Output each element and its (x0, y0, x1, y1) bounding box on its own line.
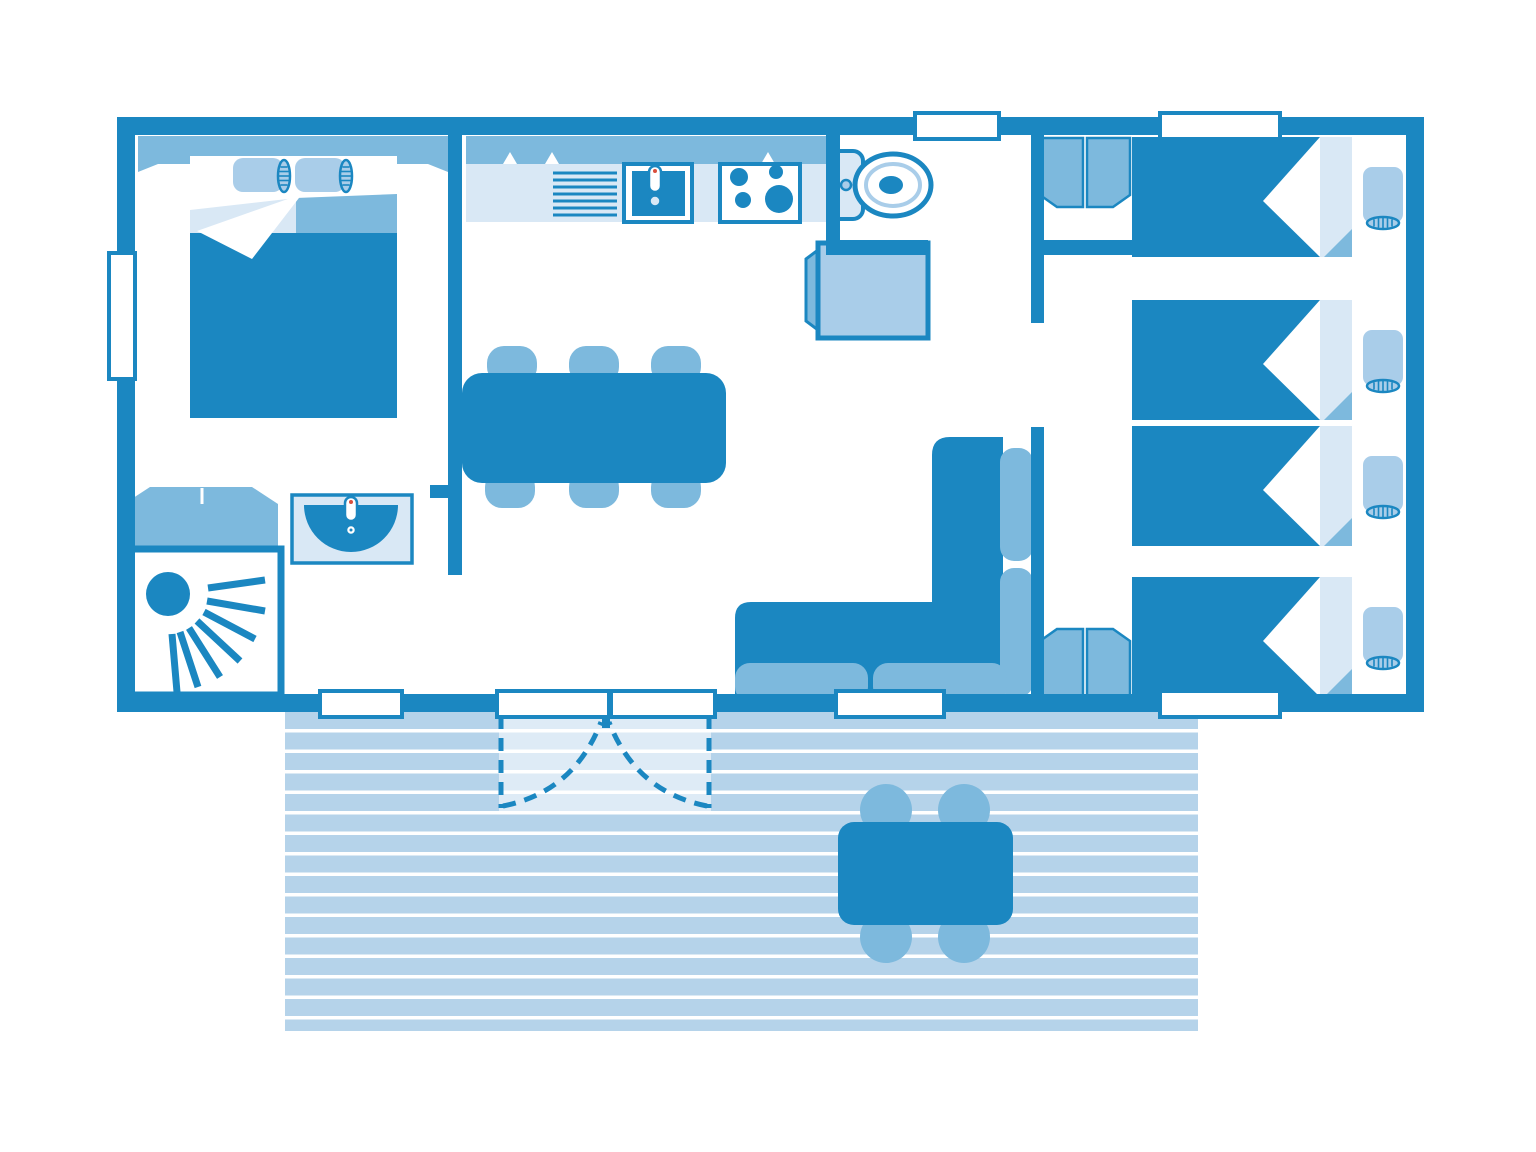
burner-icon (765, 185, 793, 213)
drain-icon (650, 196, 661, 207)
wc-room (829, 151, 931, 219)
window-bottom-mid (836, 691, 944, 717)
floor-plan-svg (0, 0, 1536, 1152)
single-bed (1132, 137, 1406, 257)
sofa-back (735, 437, 1003, 697)
window-bottom-right (1160, 691, 1280, 717)
french-door-left (497, 691, 609, 717)
deck-boards (285, 712, 1198, 1031)
wall-bedroom-divider (1031, 240, 1132, 255)
master-bedroom (124, 136, 448, 695)
sheet-band-folded (296, 194, 397, 233)
bedroom-right-beds (1132, 137, 1406, 697)
window-top-wc (915, 113, 999, 139)
burner-icon (769, 165, 783, 179)
draining-board-icon (553, 173, 617, 215)
stove (720, 164, 800, 222)
window-top-right (1160, 113, 1280, 139)
shower (124, 549, 281, 695)
burner-icon (730, 168, 748, 186)
dining-table (462, 373, 726, 483)
wall-right (1406, 117, 1424, 712)
small-wardrobe (124, 487, 278, 548)
window-left (109, 253, 135, 379)
hall-wardrobe-bottom (1040, 629, 1130, 697)
wall-master-bedroom (448, 135, 462, 575)
kitchen-sink (624, 164, 692, 222)
pillow (295, 158, 345, 192)
double-bed (190, 156, 397, 418)
floor-plan-canvas (0, 0, 1536, 1152)
wall-wc-left (826, 135, 840, 247)
window-bottom-left (320, 691, 402, 717)
wall-hall-lower (1031, 427, 1044, 697)
single-bed (1132, 426, 1406, 546)
wall-hall-upper (1031, 135, 1044, 323)
washbasin (292, 458, 412, 563)
outdoor-table (838, 822, 1013, 925)
single-bed (1132, 300, 1406, 420)
pillow (233, 158, 283, 192)
door-swing-area (499, 712, 711, 812)
wall-bathroom-stub (430, 485, 462, 498)
shower-head-icon (146, 572, 190, 616)
wall-wc-bottom (826, 240, 928, 255)
burner-icon (735, 192, 751, 208)
fridge (806, 243, 928, 338)
sofa-cushion (1000, 448, 1033, 561)
corner-sofa (735, 437, 1033, 702)
french-door-right (611, 691, 715, 717)
single-bed (1132, 577, 1406, 697)
wall-left (117, 117, 135, 712)
hall-wardrobe-top (1040, 138, 1130, 207)
terrace (285, 712, 1198, 1031)
dining-set (462, 346, 726, 508)
blanket (190, 233, 397, 418)
